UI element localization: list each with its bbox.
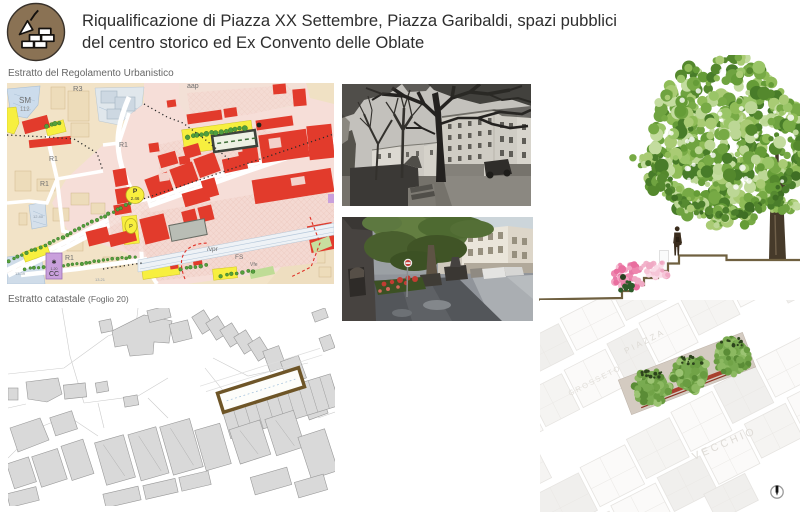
svg-text:P: P: [133, 188, 138, 195]
svg-text:aap: aap: [187, 83, 199, 90]
svg-text:13.21: 13.21: [95, 277, 106, 282]
svg-text:2.46: 2.46: [131, 196, 140, 201]
svg-text:R1: R1: [40, 181, 49, 188]
svg-text:/vpr: /vpr: [207, 246, 219, 253]
svg-text:Vfe: Vfe: [250, 262, 258, 268]
svg-text:SM: SM: [19, 96, 31, 105]
svg-text:13.39: 13.39: [15, 271, 26, 276]
svg-text:12.40: 12.40: [33, 214, 44, 219]
svg-text:FS: FS: [235, 254, 244, 261]
svg-text:R1: R1: [65, 255, 74, 262]
svg-text:112: 112: [20, 107, 30, 113]
svg-text:R1: R1: [49, 156, 58, 163]
svg-text:P: P: [129, 224, 133, 230]
svg-text:✱: ✱: [51, 259, 56, 266]
svg-text:R1: R1: [119, 142, 128, 149]
svg-text:R3: R3: [73, 84, 83, 93]
svg-text:1.20: 1.20: [51, 267, 58, 271]
svg-text:CC: CC: [49, 271, 59, 278]
